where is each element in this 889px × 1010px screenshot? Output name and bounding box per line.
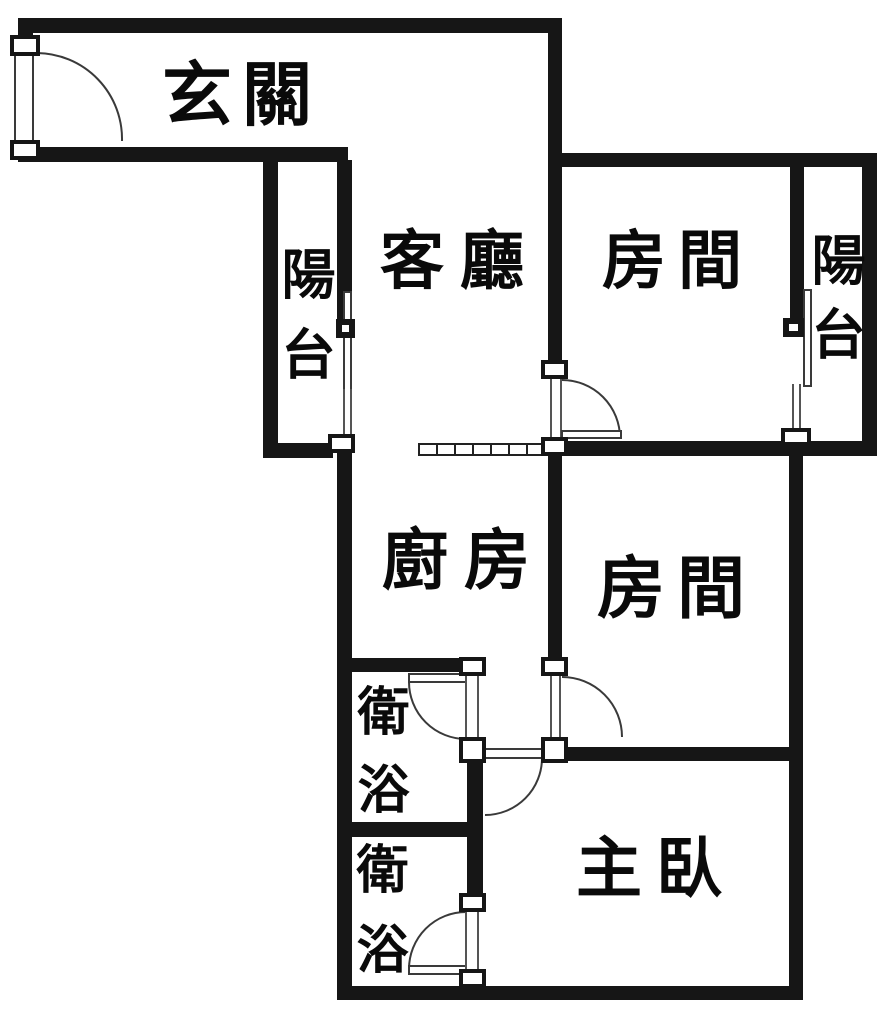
door-jamb	[541, 437, 568, 456]
room-label-room-top: 房間	[602, 230, 754, 294]
door-swing-arc	[485, 758, 542, 815]
door-swing-arc	[409, 912, 466, 969]
door-swing-arc	[409, 682, 466, 739]
room-label-entry: 玄關	[162, 60, 322, 130]
room-label-bath-lower: 衛浴	[351, 842, 403, 1002]
balcony-left-slider-leaf	[343, 291, 352, 391]
door-jamb	[459, 657, 486, 676]
bath-lower-door-track	[465, 911, 479, 971]
wall-entry-bottom	[18, 147, 348, 162]
mid-room-door-track	[550, 675, 561, 739]
door-jamb	[541, 737, 568, 763]
door-jamb	[541, 360, 568, 379]
entry-door-leaf	[14, 51, 34, 143]
wall-bath-hall	[467, 741, 483, 902]
wall-rooms-middle-horizontal	[565, 441, 877, 456]
wall-balcony-left-bottom	[263, 443, 333, 458]
door-jamb	[336, 319, 355, 338]
room-label-room-mid: 房間	[597, 556, 757, 624]
wall-north-right-section	[548, 153, 877, 167]
master-door-leaf	[484, 748, 543, 759]
door-jamb	[459, 893, 486, 912]
door-jamb	[10, 140, 40, 160]
door-jamb	[328, 434, 355, 453]
room-label-master: 主臥	[576, 836, 736, 902]
room-label-balcony-left: 陽台	[276, 246, 330, 406]
kitchen-pass-window	[418, 443, 545, 456]
room-label-kitchen: 廚房	[382, 528, 546, 594]
wall-bath-upper-top	[352, 658, 462, 672]
door-jamb	[541, 657, 568, 676]
room-label-living: 客廳	[380, 230, 540, 294]
wall-entry-top	[18, 18, 562, 33]
door-swing-arc	[562, 677, 622, 737]
balcony-right-slider-track	[792, 384, 801, 430]
door-jamb	[10, 35, 40, 56]
door-jamb	[459, 969, 486, 988]
wall-east-outer-lower	[789, 455, 803, 1000]
bath-upper-door-track	[465, 676, 479, 738]
floor-plan: 玄關 陽台 客廳 房間 陽台 廚房 房間 衛浴 衛浴 主臥	[0, 0, 889, 1010]
door-jamb	[459, 737, 486, 763]
wall-kitchen-room-divider	[548, 455, 562, 660]
wall-master-top	[552, 747, 789, 761]
room-label-bath-upper: 衛浴	[352, 684, 404, 840]
wall-living-room-divider-upper	[548, 18, 562, 363]
door-swing-arc	[37, 53, 122, 141]
door-jamb	[783, 318, 804, 337]
balcony-left-slider-track	[343, 389, 352, 437]
room-label-balcony-right: 陽台	[806, 232, 860, 380]
living-room-door-leaf	[561, 430, 622, 439]
door-jamb	[781, 428, 811, 446]
